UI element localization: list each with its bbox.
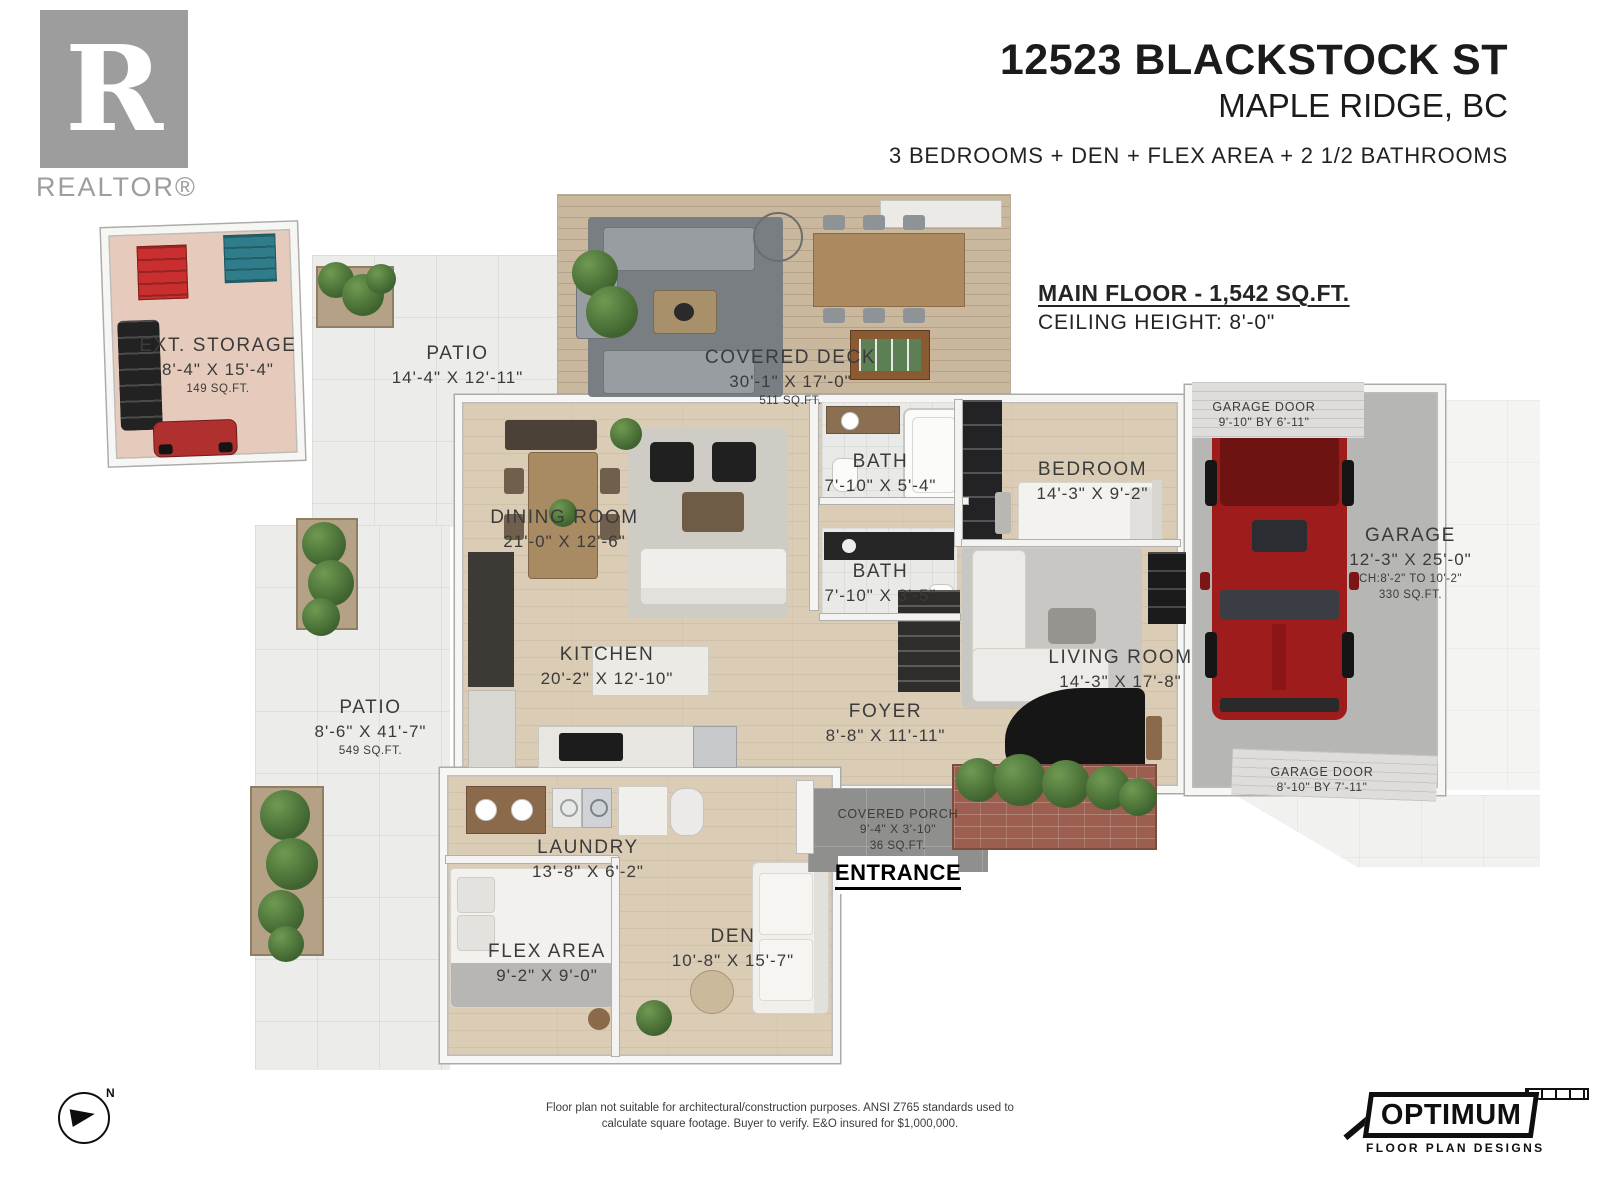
room-name: DINING ROOM: [462, 506, 667, 531]
optimum-logo: OPTIMUM FLOOR PLAN DESIGNS: [1366, 1092, 1545, 1155]
dining-chair: [863, 308, 885, 323]
room-dims: 14'-3" X 9'-2": [1000, 483, 1185, 505]
listing-city: MAPLE RIDGE, BC: [889, 87, 1508, 125]
truck-windshield: [1220, 590, 1339, 620]
side-table: [588, 1008, 610, 1030]
floor-title: MAIN FLOOR - 1,542 SQ.FT.: [1038, 280, 1350, 307]
washer-door: [560, 799, 578, 817]
bath-vanity-dark: [824, 532, 954, 560]
entrance-sign: ENTRANCE: [838, 856, 958, 894]
listing-address: 12523 BLACKSTOCK ST: [889, 36, 1508, 85]
compass-north-label: N: [106, 1086, 115, 1100]
outdoor-sofa: [603, 227, 755, 271]
red-tool-chest: [137, 245, 189, 301]
room-dims: 30'-1" X 17'-0": [688, 371, 893, 393]
room-name: FOYER: [798, 700, 973, 725]
planter-box: [296, 518, 358, 630]
room-dims: 8'-10" BY 7'-11": [1238, 780, 1406, 796]
cooktop: [559, 733, 623, 761]
label-bath-lower: BATH 7'-10" X 3'-5": [798, 560, 963, 607]
shrub: [302, 522, 346, 566]
room-dims: 8'-4" X 15'-4": [118, 359, 318, 381]
dryer: [582, 788, 612, 828]
laundry-counter: [466, 786, 546, 834]
dining-chair: [903, 308, 925, 323]
mower-wheel: [158, 444, 172, 454]
shrub: [266, 838, 318, 890]
room-name: LIVING ROOM: [1018, 646, 1223, 671]
room-dims: 13'-8" X 6'-2": [493, 861, 683, 883]
sofa-back: [641, 588, 786, 604]
planter-box: [316, 266, 394, 328]
room-name: BATH: [798, 450, 963, 475]
room-ceiling: CH:8'-2" TO 10'-2": [1328, 572, 1493, 587]
sideboard: [505, 420, 597, 450]
water-heater: [670, 788, 704, 836]
truck-bed: [1220, 426, 1339, 506]
label-den: DEN 10'-8" X 15'-7": [638, 925, 828, 972]
sink: [511, 799, 533, 821]
realtor-logo-letter: R: [65, 30, 163, 148]
potted-plant: [610, 418, 642, 450]
truck-wheel: [1205, 460, 1217, 506]
shrub: [1042, 760, 1090, 808]
room-area: 549 SQ.FT.: [278, 744, 463, 759]
room-dims: 7'-10" X 5'-4": [798, 475, 963, 497]
optimum-frame: OPTIMUM: [1363, 1092, 1539, 1138]
room-name: FLEX AREA: [452, 940, 642, 965]
label-living-room: LIVING ROOM 14'-3" X 17'-8": [1018, 646, 1223, 693]
room-dims: 12'-3" X 25'-0": [1328, 549, 1493, 571]
listing-header: 12523 BLACKSTOCK ST MAPLE RIDGE, BC 3 BE…: [889, 36, 1508, 169]
label-covered-porch: COVERED PORCH 9'-4" X 3'-10" 36 SQ.FT.: [818, 806, 978, 854]
media-shelving: [1148, 552, 1186, 624]
room-name: GARAGE DOOR: [1180, 399, 1348, 415]
floor-info: MAIN FLOOR - 1,542 SQ.FT. CEILING HEIGHT…: [1038, 280, 1350, 335]
tree: [586, 286, 638, 338]
disclaimer-text: Floor plan not suitable for architectura…: [520, 1100, 1040, 1132]
sink: [475, 799, 497, 821]
shrub: [366, 264, 396, 294]
range-counter: [538, 726, 695, 768]
outdoor-dining-table: [813, 233, 965, 307]
label-patio-left: PATIO 8'-6" X 41'-7" 549 SQ.FT.: [278, 696, 463, 759]
lawn-mower: [153, 419, 238, 458]
interior-wall: [820, 498, 968, 504]
deck-bench: [880, 200, 1002, 228]
sink: [841, 412, 859, 430]
accent-chair: [650, 442, 694, 482]
ceiling-height: CEILING HEIGHT: 8'-0": [1038, 311, 1350, 335]
truck-wheel: [1342, 460, 1354, 506]
room-area: 149 SQ.FT.: [118, 382, 318, 397]
pickup-truck: [1212, 420, 1347, 720]
shrub: [302, 598, 340, 636]
room-name: BATH: [798, 560, 963, 585]
label-bath-upper: BATH 7'-10" X 5'-4": [798, 450, 963, 497]
sofa: [640, 548, 787, 605]
room-name: PATIO: [278, 696, 463, 721]
entrance-label: ENTRANCE: [835, 860, 961, 890]
truck-grille: [1220, 698, 1339, 712]
room-name: GARAGE: [1328, 524, 1493, 549]
label-bedroom: BEDROOM 14'-3" X 9'-2": [1000, 458, 1185, 505]
dining-chair: [823, 215, 845, 230]
optimum-tagline: FLOOR PLAN DESIGNS: [1366, 1141, 1545, 1155]
pillows: [457, 877, 495, 913]
shrub: [1119, 778, 1157, 816]
label-garage-door-lower: GARAGE DOOR 8'-10" BY 7'-11": [1238, 764, 1406, 796]
planter-box: [250, 786, 324, 956]
room-name: EXT. STORAGE: [118, 334, 318, 359]
mower-wheel: [218, 442, 232, 452]
bath-vanity: [826, 406, 900, 434]
label-dining-room: DINING ROOM 21'-0" X 12'-6": [462, 506, 667, 553]
room-area: 511 SQ.FT.: [688, 394, 893, 409]
room-dims: 14'-4" X 12'-11": [365, 367, 550, 389]
truck-sunroof: [1252, 520, 1307, 552]
kitchen-counter: [468, 690, 516, 768]
room-name: DEN: [638, 925, 828, 950]
listing-features: 3 BEDROOMS + DEN + FLEX AREA + 2 1/2 BAT…: [889, 143, 1508, 169]
potted-plant: [636, 1000, 672, 1036]
round-table: [690, 970, 734, 1014]
refrigerator: [693, 726, 737, 768]
interior-wall: [820, 614, 960, 620]
room-dims: 8'-6" X 41'-7": [278, 721, 463, 743]
disclaimer-line-2: calculate square footage. Buyer to verif…: [520, 1116, 1040, 1132]
room-name: LAUNDRY: [493, 836, 683, 861]
dining-chair: [600, 468, 620, 494]
floor-plan-page: R REALTOR® 12523 BLACKSTOCK ST MAPLE RID…: [0, 0, 1600, 1200]
room-area: 330 SQ.FT.: [1328, 588, 1493, 603]
room-name: GARAGE DOOR: [1238, 764, 1406, 780]
shrub: [268, 926, 304, 962]
interior-wall: [962, 540, 1180, 546]
accent-chair: [712, 442, 756, 482]
label-garage: GARAGE 12'-3" X 25'-0" CH:8'-2" TO 10'-2…: [1328, 524, 1493, 603]
storage-bins: [223, 233, 277, 283]
pendant-light-icon: [753, 212, 803, 262]
room-dims: 9'-4" X 3'-10": [818, 822, 978, 838]
dining-chair: [504, 468, 524, 494]
room-area: 36 SQ.FT.: [818, 839, 978, 854]
room-dims: 9'-2" X 9'-0": [452, 965, 642, 987]
room-name: COVERED DECK: [688, 346, 893, 371]
label-foyer: FOYER 8'-8" X 11'-11": [798, 700, 973, 747]
laundry-cabinet: [618, 786, 668, 836]
truck-hood-line: [1272, 624, 1286, 690]
label-flex-area: FLEX AREA 9'-2" X 9'-0": [452, 940, 642, 987]
piano-bench: [1146, 716, 1162, 760]
room-name: BEDROOM: [1000, 458, 1185, 483]
sink: [842, 539, 856, 553]
label-ext-storage: EXT. STORAGE 8'-4" X 15'-4" 149 SQ.FT.: [118, 334, 318, 397]
label-kitchen: KITCHEN 20'-2" X 12'-10": [502, 643, 712, 690]
dining-chair: [863, 215, 885, 230]
truck-mirror: [1200, 572, 1210, 590]
coffee-table: [682, 492, 744, 532]
optimum-wordmark: OPTIMUM: [1381, 1099, 1521, 1132]
label-covered-deck: COVERED DECK 30'-1" X 17'-0" 511 SQ.FT.: [688, 346, 893, 409]
compass-icon: N: [58, 1092, 110, 1144]
disclaimer-line-1: Floor plan not suitable for architectura…: [520, 1100, 1040, 1116]
label-patio-top: PATIO 14'-4" X 12'-11": [365, 342, 550, 389]
room-name: KITCHEN: [502, 643, 712, 668]
room-dims: 9'-10" BY 6'-11": [1180, 415, 1348, 431]
room-name: PATIO: [365, 342, 550, 367]
driveway-surface: [1235, 795, 1540, 867]
realtor-logo: R: [40, 10, 188, 168]
room-dims: 8'-8" X 11'-11": [798, 725, 973, 747]
room-dims: 14'-3" X 17'-8": [1018, 671, 1223, 693]
label-laundry: LAUNDRY 13'-8" X 6'-2": [493, 836, 683, 883]
flex-bed: [450, 868, 614, 1008]
shrub: [260, 790, 310, 840]
truck-wheel: [1342, 632, 1354, 678]
porch-pillar: [796, 780, 814, 854]
shrub: [994, 754, 1046, 806]
compass-needle-icon: [70, 1105, 97, 1127]
room-dims: 10'-8" X 15'-7": [638, 950, 828, 972]
label-garage-door-upper: GARAGE DOOR 9'-10" BY 6'-11": [1180, 399, 1348, 431]
room-name: COVERED PORCH: [818, 806, 978, 822]
washer: [552, 788, 582, 828]
room-dims: 20'-2" X 12'-10": [502, 668, 712, 690]
dining-chair: [823, 308, 845, 323]
brick-planter: [952, 764, 1157, 850]
fire-table: [653, 290, 717, 334]
dining-chair: [903, 215, 925, 230]
ottoman: [1048, 608, 1096, 644]
room-dims: 21'-0" X 12'-6": [462, 531, 667, 553]
realtor-wordmark: REALTOR®: [36, 172, 197, 203]
dryer-door: [590, 799, 608, 817]
fire-bowl: [674, 303, 694, 321]
room-dims: 7'-10" X 3'-5": [798, 585, 963, 607]
